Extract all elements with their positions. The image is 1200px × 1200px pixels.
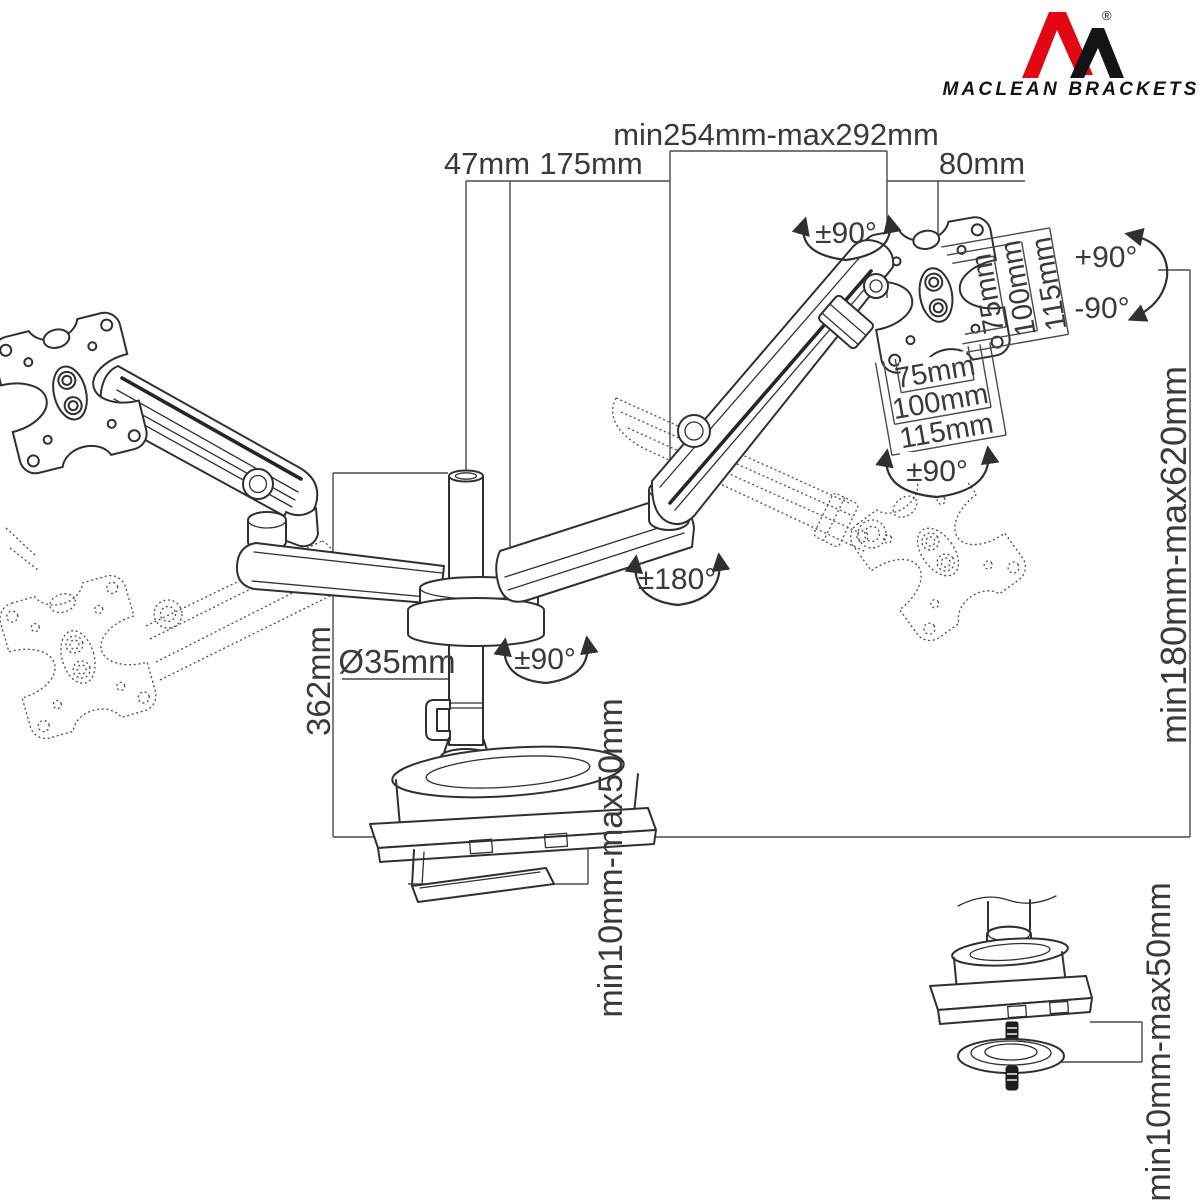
- technical-diagram-canvas: 75mm 100mm 115mm 75mm 100mm 115mm 47mm 1…: [0, 0, 1200, 1200]
- screen-rotation-label: ±90°: [906, 455, 968, 488]
- pole-height-label: 362mm: [300, 626, 337, 736]
- registered-mark: ®: [1102, 8, 1112, 23]
- pole-diameter-label: Ø35mm: [338, 643, 455, 680]
- head-swivel-label: ±90°: [815, 217, 877, 250]
- height-range-label: min180mm-max620mm: [1153, 366, 1194, 744]
- left-lower-arm: [237, 512, 444, 604]
- arm-swivel-label: ±180°: [638, 563, 717, 596]
- pole-offset-label: 47mm: [444, 146, 530, 181]
- right-gas-spring-arm: [652, 240, 893, 524]
- pole-swivel-label: ±90°: [514, 643, 576, 676]
- tilt-up-label: +90°: [1075, 241, 1138, 274]
- vesa-horizontal-brackets: 75mm 100mm 115mm: [876, 342, 1007, 457]
- upper-arm-range-label: min254mm-max292mm: [613, 117, 939, 152]
- brand-logo: ® MACLEAN BRACKETS: [942, 8, 1199, 100]
- ghost-left-vesa-plate: [0, 572, 160, 742]
- tilt-down-label: -90°: [1074, 292, 1129, 325]
- desk-thickness-label: min10mm-max50mm: [592, 698, 630, 1017]
- brand-name: MACLEAN BRACKETS: [942, 79, 1199, 100]
- vesa-offset-label: 80mm: [939, 146, 1025, 181]
- desk-thickness-detail-label: min10mm-max50mm: [1140, 882, 1178, 1200]
- grommet-mount-detail: [930, 896, 1092, 1090]
